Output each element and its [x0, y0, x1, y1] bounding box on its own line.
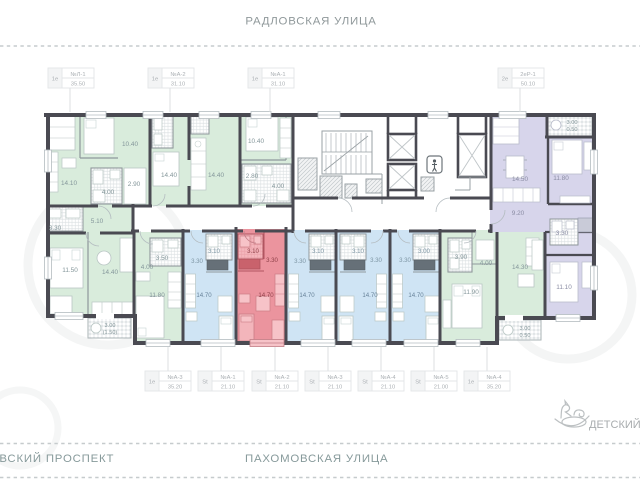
svg-text:50.10: 50.10	[521, 82, 536, 88]
svg-text:1е: 1е	[252, 77, 258, 83]
svg-text:№А-4: №А-4	[380, 375, 396, 381]
svg-text:№А-4: №А-4	[486, 375, 502, 381]
svg-text:14.70: 14.70	[196, 292, 212, 299]
svg-text:21.10: 21.10	[275, 385, 290, 391]
svg-text:10.40: 10.40	[248, 138, 264, 145]
svg-text:ЕВСКИЙ ПРОСПЕКТ: ЕВСКИЙ ПРОСПЕКТ	[0, 452, 114, 465]
svg-text:14.70: 14.70	[408, 292, 424, 299]
svg-text:14.40: 14.40	[208, 172, 224, 179]
svg-text:3.00: 3.00	[105, 323, 116, 329]
svg-text:St: St	[362, 380, 368, 386]
svg-text:10.40: 10.40	[122, 141, 138, 148]
svg-text:3.00: 3.00	[567, 120, 578, 126]
svg-text:14.70: 14.70	[299, 292, 315, 299]
svg-text:0.50: 0.50	[567, 127, 578, 133]
svg-text:4.00: 4.00	[480, 260, 493, 267]
svg-text:4.00: 4.00	[102, 189, 115, 196]
svg-text:1е: 1е	[149, 380, 155, 386]
svg-text:St: St	[202, 380, 208, 386]
svg-text:11.90: 11.90	[463, 289, 479, 296]
svg-text:St: St	[309, 380, 315, 386]
svg-text:3.10: 3.10	[352, 248, 364, 255]
svg-text:3.10: 3.10	[312, 248, 324, 255]
svg-text:3.10: 3.10	[208, 248, 220, 255]
svg-text:35.20: 35.20	[487, 385, 502, 391]
svg-text:2еР-1: 2еР-1	[520, 72, 535, 78]
svg-text:3.30: 3.30	[49, 225, 62, 232]
svg-text:9.20: 9.20	[512, 210, 525, 217]
svg-text:2.90: 2.90	[128, 181, 141, 188]
svg-text:3.30: 3.30	[294, 258, 306, 265]
svg-text:№А-5: №А-5	[433, 375, 448, 381]
svg-text:11.50: 11.50	[62, 267, 78, 274]
svg-text:21.10: 21.10	[381, 385, 396, 391]
svg-text:21.10: 21.10	[328, 385, 343, 391]
svg-text:ДЕТСКИЙ: ДЕТСКИЙ	[589, 418, 640, 431]
svg-text:St: St	[256, 380, 262, 386]
svg-text:3.50: 3.50	[156, 255, 169, 262]
svg-text:21.10: 21.10	[221, 385, 236, 391]
svg-text:1е: 1е	[468, 380, 474, 386]
svg-text:№Л-1: №Л-1	[70, 72, 85, 78]
svg-text:14.40: 14.40	[102, 269, 118, 276]
svg-text:ПАХОМОВСКАЯ УЛИЦА: ПАХОМОВСКАЯ УЛИЦА	[245, 453, 388, 465]
svg-text:№А-2: №А-2	[274, 375, 289, 381]
svg-text:4.00: 4.00	[141, 264, 154, 271]
svg-text:14.30: 14.30	[512, 264, 528, 271]
svg-text:14.10: 14.10	[61, 180, 77, 187]
svg-text:№А-2: №А-2	[170, 72, 185, 78]
svg-text:31.10: 31.10	[271, 82, 286, 88]
svg-text:№А-3: №А-3	[327, 375, 342, 381]
svg-text:3.10: 3.10	[247, 248, 259, 255]
svg-text:14.50: 14.50	[512, 176, 528, 183]
svg-text:3.30: 3.30	[556, 230, 569, 237]
svg-text:0.50: 0.50	[520, 333, 531, 339]
svg-text:35.50: 35.50	[71, 82, 86, 88]
svg-text:11.80: 11.80	[553, 175, 569, 182]
svg-text:3.30: 3.30	[399, 257, 411, 264]
svg-text:1е: 1е	[152, 77, 158, 83]
svg-text:3.30: 3.30	[191, 258, 203, 265]
svg-text:№А-3: №А-3	[167, 375, 182, 381]
svg-text:14.70: 14.70	[258, 292, 274, 299]
svg-text:11.10: 11.10	[556, 284, 572, 291]
svg-text:35.20: 35.20	[168, 385, 183, 391]
svg-text:5.10: 5.10	[91, 218, 104, 225]
svg-text:St: St	[415, 380, 421, 386]
svg-text:3.90: 3.90	[455, 254, 468, 261]
svg-text:31.10: 31.10	[171, 82, 186, 88]
svg-text:3.00: 3.00	[520, 326, 531, 332]
svg-text:1е: 1е	[52, 77, 58, 83]
svg-text:3.30: 3.30	[266, 257, 278, 264]
svg-text:14.70: 14.70	[362, 292, 378, 299]
svg-text:№А-1: №А-1	[270, 72, 285, 78]
svg-text:3.00: 3.00	[418, 248, 430, 255]
svg-text:14.40: 14.40	[161, 172, 177, 179]
svg-text:2.80: 2.80	[246, 173, 259, 180]
svg-text:РАДЛОВСКАЯ УЛИЦА: РАДЛОВСКАЯ УЛИЦА	[245, 16, 376, 28]
svg-text:(1.50): (1.50)	[103, 330, 118, 336]
svg-text:4.00: 4.00	[272, 183, 285, 190]
svg-text:2е: 2е	[502, 77, 508, 83]
svg-text:3.30: 3.30	[370, 257, 382, 264]
svg-text:№А-1: №А-1	[220, 375, 235, 381]
svg-text:11.80: 11.80	[149, 292, 165, 299]
svg-text:21.00: 21.00	[434, 385, 449, 391]
